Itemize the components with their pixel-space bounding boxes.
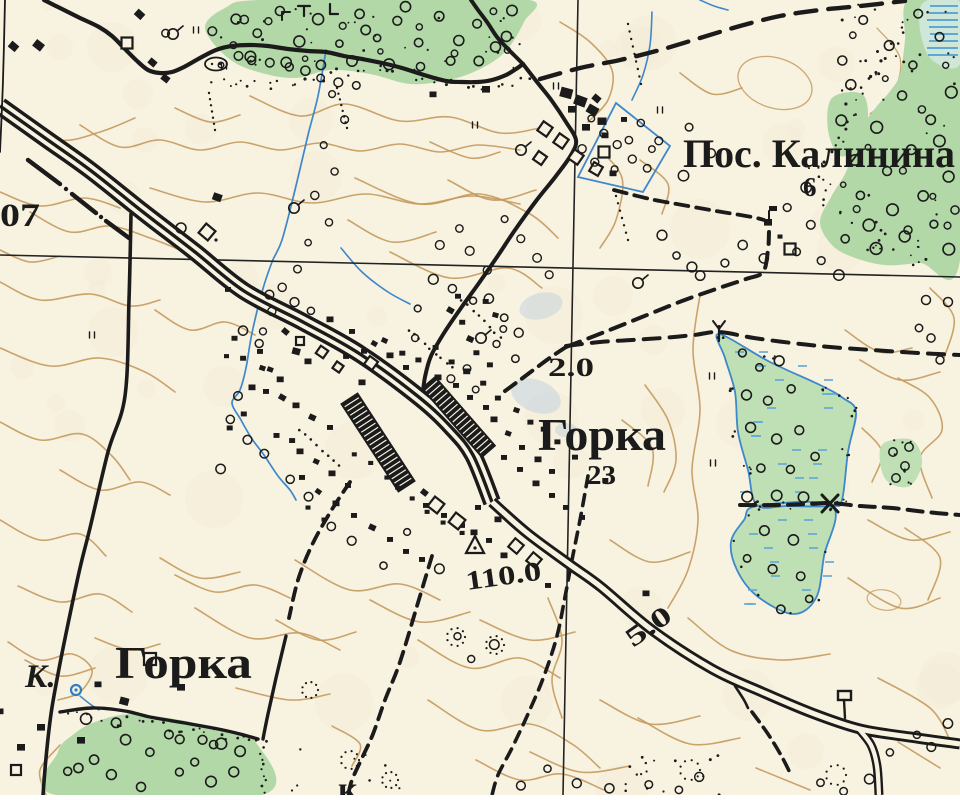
svg-text:23: 23 — [587, 460, 616, 490]
svg-text:Горка: Горка — [115, 637, 252, 688]
svg-text:К.: К. — [24, 659, 56, 695]
svg-text:Горка: Горка — [538, 410, 666, 460]
svg-text:07: 07 — [0, 198, 40, 234]
svg-text:6: 6 — [803, 172, 817, 202]
svg-text:к: к — [338, 771, 358, 795]
svg-text:Пос. Калинина: Пос. Калинина — [683, 131, 955, 176]
svg-text:2.0: 2.0 — [548, 353, 594, 382]
